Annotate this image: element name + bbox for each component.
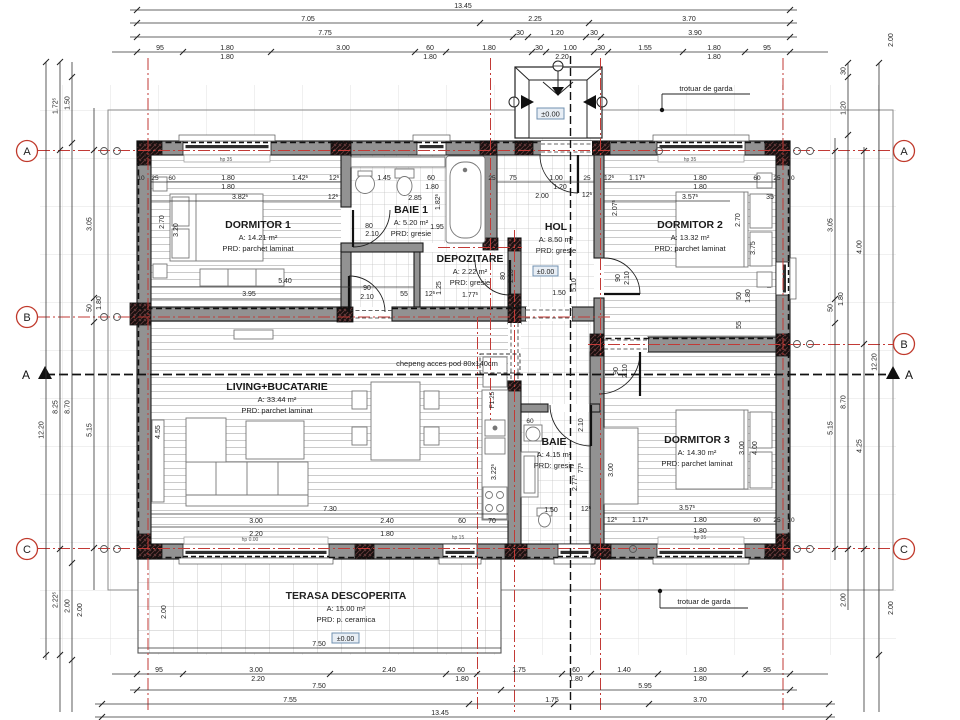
svg-text:1.80: 1.80 [745,289,752,303]
svg-text:50: 50 [828,304,835,312]
svg-text:1.80: 1.80 [707,54,721,61]
svg-text:2.20: 2.20 [555,54,569,61]
svg-text:A: 14.30 m²: A: 14.30 m² [678,448,717,457]
svg-text:95: 95 [763,667,771,674]
svg-text:3.05: 3.05 [828,218,835,232]
svg-text:1.20: 1.20 [553,184,567,191]
svg-text:F1.25: F1.25 [489,391,496,408]
svg-text:80: 80 [500,272,507,280]
svg-text:hp 35: hp 35 [684,157,697,163]
svg-text:95: 95 [155,667,163,674]
svg-text:60: 60 [753,175,761,182]
svg-text:A: A [905,368,913,382]
svg-text:8.70: 8.70 [65,400,72,414]
svg-text:70: 70 [488,518,496,525]
svg-text:2.00: 2.00 [888,33,895,47]
svg-text:10: 10 [787,175,795,182]
svg-text:30: 30 [535,45,543,52]
svg-text:2.10: 2.10 [624,271,631,285]
svg-text:3.00: 3.00 [336,45,350,52]
svg-text:50: 50 [736,292,743,300]
svg-text:PRD: gresie: PRD: gresie [450,278,490,287]
svg-text:50: 50 [87,304,94,312]
svg-text:8.25: 8.25 [53,400,60,414]
svg-text:1.75: 1.75 [512,667,526,674]
svg-text:7.05: 7.05 [301,16,315,23]
svg-text:1.50: 1.50 [544,507,558,514]
svg-text:60: 60 [168,175,176,182]
svg-text:PRD: gresie: PRD: gresie [391,229,431,238]
svg-text:2.00: 2.00 [841,593,848,607]
svg-text:5.40: 5.40 [278,278,292,285]
svg-text:1.25: 1.25 [436,281,443,295]
svg-text:2.10: 2.10 [365,231,379,238]
svg-text:PRD: gresie: PRD: gresie [534,461,574,470]
svg-text:2.20: 2.20 [249,531,263,538]
svg-text:trotuar de garda: trotuar de garda [679,84,733,93]
svg-text:5.15: 5.15 [828,421,835,435]
svg-text:1.80: 1.80 [425,184,439,191]
svg-text:2.40: 2.40 [382,667,396,674]
svg-text:B: B [900,339,907,351]
svg-text:1.80: 1.80 [693,175,707,182]
svg-text:55: 55 [736,321,743,329]
svg-text:PRD: gresie: PRD: gresie [536,246,576,255]
svg-text:4.25: 4.25 [857,439,864,453]
svg-text:2.10: 2.10 [360,294,374,301]
svg-text:1.80: 1.80 [569,676,583,683]
svg-text:1.80: 1.80 [482,45,496,52]
svg-text:PRD: parchet laminat: PRD: parchet laminat [654,244,726,253]
svg-text:95: 95 [763,45,771,52]
svg-text:A: 15.00 m²: A: 15.00 m² [327,604,366,613]
svg-text:30: 30 [597,45,605,52]
svg-text:LIVING+BUCATARIE: LIVING+BUCATARIE [226,381,327,393]
svg-text:25: 25 [151,175,159,182]
svg-text:1.40: 1.40 [617,667,631,674]
svg-text:1.80: 1.80 [693,676,707,683]
svg-text:90: 90 [613,367,620,375]
svg-text:1.80: 1.80 [707,45,721,52]
svg-text:25: 25 [773,517,781,524]
svg-text:60: 60 [426,45,434,52]
svg-text:1.50: 1.50 [552,290,566,297]
svg-text:60: 60 [427,175,435,182]
svg-text:A: 4.15 m²: A: 4.15 m² [537,450,572,459]
svg-text:2.70: 2.70 [159,215,166,229]
svg-text:30: 30 [841,67,848,75]
svg-text:2.10: 2.10 [508,269,515,283]
svg-text:trotuar de garda: trotuar de garda [677,597,731,606]
svg-text:1.80: 1.80 [693,667,707,674]
svg-text:TERASA DESCOPERITA: TERASA DESCOPERITA [286,590,407,602]
svg-text:A: A [22,368,30,382]
svg-text:1.80: 1.80 [693,184,707,191]
svg-text:A: 13.32 m²: A: 13.32 m² [671,233,710,242]
svg-text:1.80: 1.80 [220,45,234,52]
svg-text:60: 60 [458,518,466,525]
svg-text:A: 14.21 m²: A: 14.21 m² [239,233,278,242]
svg-text:3.20: 3.20 [173,223,180,237]
svg-text:7.50: 7.50 [312,641,326,648]
svg-text:A: 8.50 m²: A: 8.50 m² [539,235,574,244]
svg-text:2.10: 2.10 [622,364,629,378]
svg-text:DORMITOR 1: DORMITOR 1 [225,219,291,231]
svg-text:13.45: 13.45 [431,710,449,717]
svg-text:80: 80 [365,223,373,230]
svg-text:A: 2.22 m²: A: 2.22 m² [453,267,488,276]
svg-text:1.95: 1.95 [430,224,444,231]
svg-text:30: 30 [516,30,524,37]
svg-text:3.75: 3.75 [750,241,757,255]
svg-text:1.80: 1.80 [221,175,235,182]
svg-text:1.20: 1.20 [550,30,564,37]
svg-text:3.05: 3.05 [87,217,94,231]
svg-text:95: 95 [156,45,164,52]
svg-text:2.00: 2.00 [77,603,84,617]
svg-text:5.95: 5.95 [638,683,652,690]
svg-text:A: 33.44 m²: A: 33.44 m² [258,395,297,404]
svg-text:7.75: 7.75 [318,30,332,37]
svg-text:25: 25 [773,175,781,182]
svg-text:10: 10 [137,175,145,182]
svg-text:±0.00: ±0.00 [337,636,355,643]
svg-text:12.20: 12.20 [39,421,46,439]
svg-text:A: A [900,146,908,158]
svg-text:hp 15: hp 15 [452,535,465,541]
svg-text:35: 35 [766,194,774,201]
svg-text:1.75: 1.75 [545,697,559,704]
svg-text:3.95: 3.95 [242,291,256,298]
svg-text:DORMITOR 3: DORMITOR 3 [664,434,730,446]
svg-text:3.70: 3.70 [682,16,696,23]
svg-text:25: 25 [488,175,496,182]
svg-text:1.20: 1.20 [841,101,848,115]
svg-text:PRD: p. ceramica: PRD: p. ceramica [317,615,377,624]
svg-text:4.00: 4.00 [857,240,864,254]
svg-text:90: 90 [615,274,622,282]
svg-text:1.55: 1.55 [638,45,652,52]
svg-text:chepeng acces pod 80x140cm: chepeng acces pod 80x140cm [396,359,498,368]
svg-text:2.00: 2.00 [161,605,168,619]
svg-text:1.80: 1.80 [220,54,234,61]
svg-text:5.10: 5.10 [571,278,578,292]
svg-text:PRD: parchet laminat: PRD: parchet laminat [241,406,313,415]
svg-text:2.85: 2.85 [408,195,422,202]
svg-text:60: 60 [572,667,580,674]
svg-text:1.80: 1.80 [455,676,469,683]
svg-text:7.30: 7.30 [323,506,337,513]
svg-text:55: 55 [400,291,408,298]
svg-text:1.00: 1.00 [549,175,563,182]
svg-text:PRD: parchet laminat: PRD: parchet laminat [222,244,294,253]
svg-text:3.00: 3.00 [608,463,615,477]
svg-text:5.15: 5.15 [87,423,94,437]
svg-text:hp 35: hp 35 [220,157,233,163]
svg-text:2.00: 2.00 [65,599,72,613]
svg-text:3.00: 3.00 [249,667,263,674]
svg-text:3.70: 3.70 [693,697,707,704]
svg-text:12.20: 12.20 [872,353,879,371]
svg-text:C: C [900,544,908,556]
svg-text:2.00: 2.00 [535,193,549,200]
svg-text:2.00: 2.00 [888,601,895,615]
svg-text:2.20: 2.20 [251,676,265,683]
svg-text:±0.00: ±0.00 [541,110,560,119]
svg-text:25: 25 [583,175,591,182]
svg-text:PRD: parchet laminat: PRD: parchet laminat [661,459,733,468]
svg-text:7.50: 7.50 [312,683,326,690]
svg-text:DEPOZITARE: DEPOZITARE [437,253,504,265]
svg-text:HOL: HOL [545,221,568,233]
svg-text:1.80: 1.80 [380,531,394,538]
svg-text:B: B [23,312,30,324]
svg-text:2.10: 2.10 [578,418,585,432]
svg-text:2.40: 2.40 [380,518,394,525]
svg-text:BAIE: BAIE [541,436,566,448]
svg-text:3.00: 3.00 [739,441,746,455]
svg-text:30: 30 [590,30,598,37]
svg-text:C: C [23,544,31,556]
svg-text:A: 5.20 m²: A: 5.20 m² [394,218,429,227]
svg-text:1.80: 1.80 [96,296,103,310]
svg-text:60: 60 [753,517,761,524]
svg-text:60: 60 [457,667,465,674]
svg-text:A: A [23,146,31,158]
svg-text:1.50: 1.50 [65,96,72,110]
svg-text:1.80: 1.80 [693,517,707,524]
svg-text:2.25: 2.25 [528,16,542,23]
svg-text:8.70: 8.70 [841,395,848,409]
svg-text:BAIE 1: BAIE 1 [394,204,428,216]
svg-text:1.80: 1.80 [693,528,707,535]
svg-text:4.00: 4.00 [752,441,759,455]
svg-text:2.70: 2.70 [735,213,742,227]
svg-text:75: 75 [509,175,517,182]
svg-text:7.55: 7.55 [283,697,297,704]
svg-text:4.55: 4.55 [155,425,162,439]
svg-text:1.80: 1.80 [221,184,235,191]
svg-text:hp 35: hp 35 [694,535,707,541]
svg-text:1.80: 1.80 [838,292,845,306]
svg-text:10: 10 [787,517,795,524]
svg-text:1.80: 1.80 [423,54,437,61]
svg-text:3.90: 3.90 [688,30,702,37]
svg-text:±0.00: ±0.00 [537,269,555,276]
svg-text:3.00: 3.00 [249,518,263,525]
svg-text:1.00: 1.00 [563,45,577,52]
svg-text:1.45: 1.45 [377,175,391,182]
svg-text:90: 90 [363,285,371,292]
svg-text:DORMITOR 2: DORMITOR 2 [657,219,723,231]
svg-text:13.45: 13.45 [454,3,472,10]
svg-text:60: 60 [526,418,534,425]
